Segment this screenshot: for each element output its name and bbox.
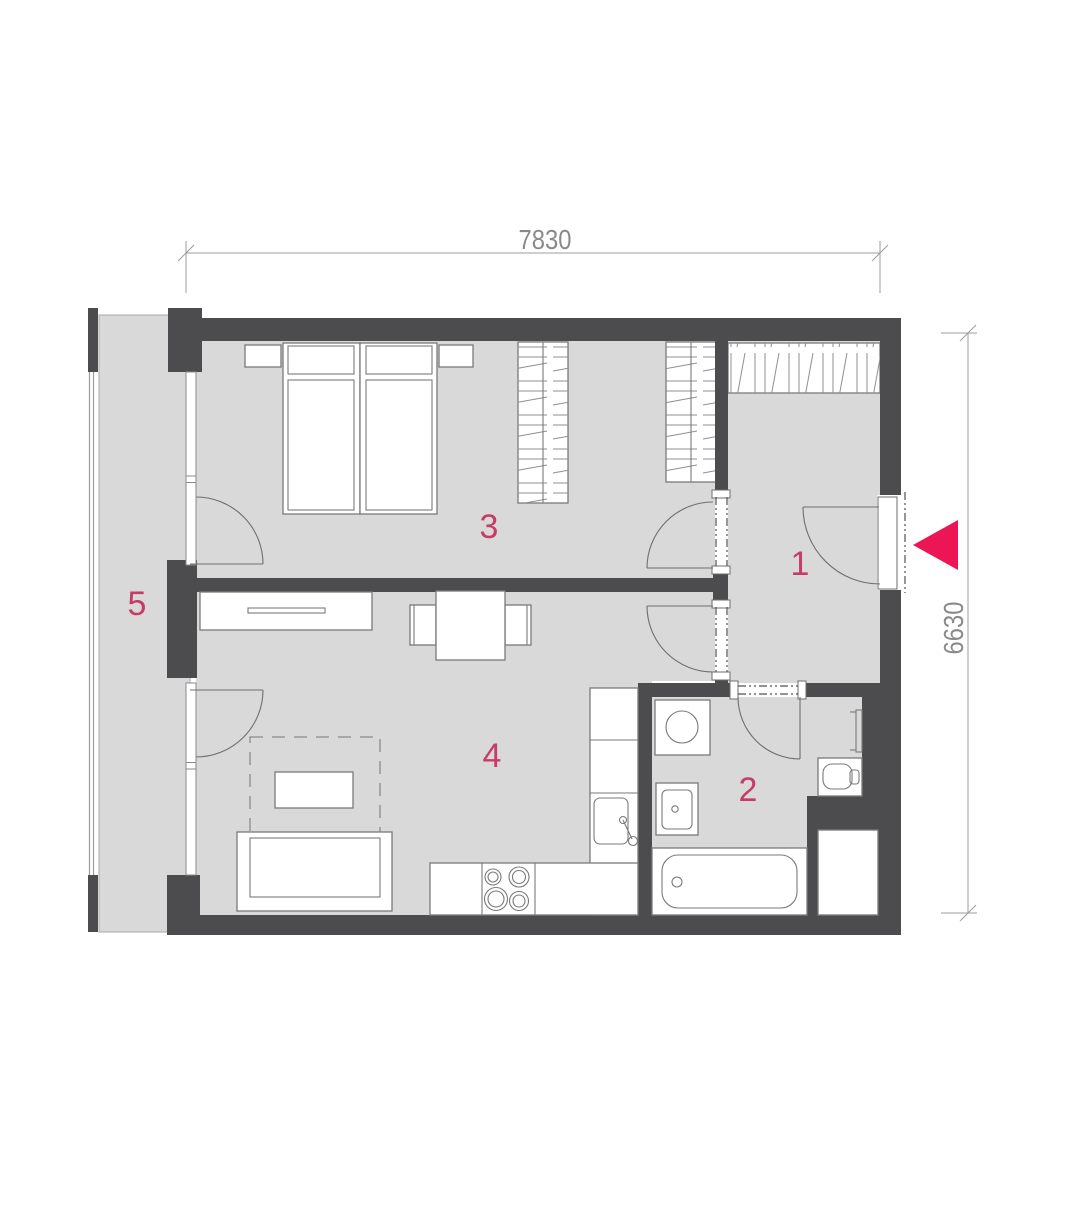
- washbasin-icon: [656, 783, 698, 835]
- bathtub-icon: [652, 848, 807, 915]
- coffee-table-icon: [275, 772, 353, 808]
- nightstand-icon: [439, 345, 473, 367]
- door-jamb: [712, 672, 730, 680]
- hall-closet-icon: [728, 343, 880, 393]
- bedroom-floor: [196, 341, 715, 578]
- room-label-hall: 1: [791, 545, 810, 583]
- washing-machine-icon: [655, 700, 710, 755]
- dimension-right: 6630: [937, 325, 977, 921]
- room-label-living-kitchen: 4: [483, 737, 502, 775]
- toilet-icon: [818, 758, 862, 796]
- floor-plan: 7830 6630 1 2 3 4 5: [0, 0, 1080, 1225]
- room-label-balcony: 5: [128, 585, 147, 623]
- door-jamb: [712, 490, 730, 498]
- door-jamb: [730, 681, 738, 699]
- dimension-top-label: 7830: [519, 223, 572, 255]
- sideboard-icon: [200, 592, 372, 630]
- double-bed-icon: [283, 343, 437, 514]
- dimension-right-label: 6630: [937, 602, 969, 655]
- nightstand-icon: [245, 345, 281, 367]
- floor-plan-page: 7830 6630 1 2 3 4 5: [0, 0, 1080, 1225]
- door-jamb: [712, 600, 730, 608]
- door-jamb: [712, 566, 730, 574]
- door-jamb: [798, 681, 806, 699]
- entrance-arrow-icon: [913, 520, 958, 570]
- window-icon: [186, 683, 196, 875]
- window-icon: [186, 372, 196, 565]
- wardrobe-icon: [666, 342, 716, 482]
- sofa-icon: [237, 832, 392, 911]
- dimension-top: 7830: [178, 223, 888, 293]
- wardrobe-icon: [518, 342, 568, 503]
- shaft-icon: [818, 830, 878, 915]
- room-label-bathroom: 2: [739, 771, 758, 809]
- room-label-bedroom: 3: [480, 508, 499, 546]
